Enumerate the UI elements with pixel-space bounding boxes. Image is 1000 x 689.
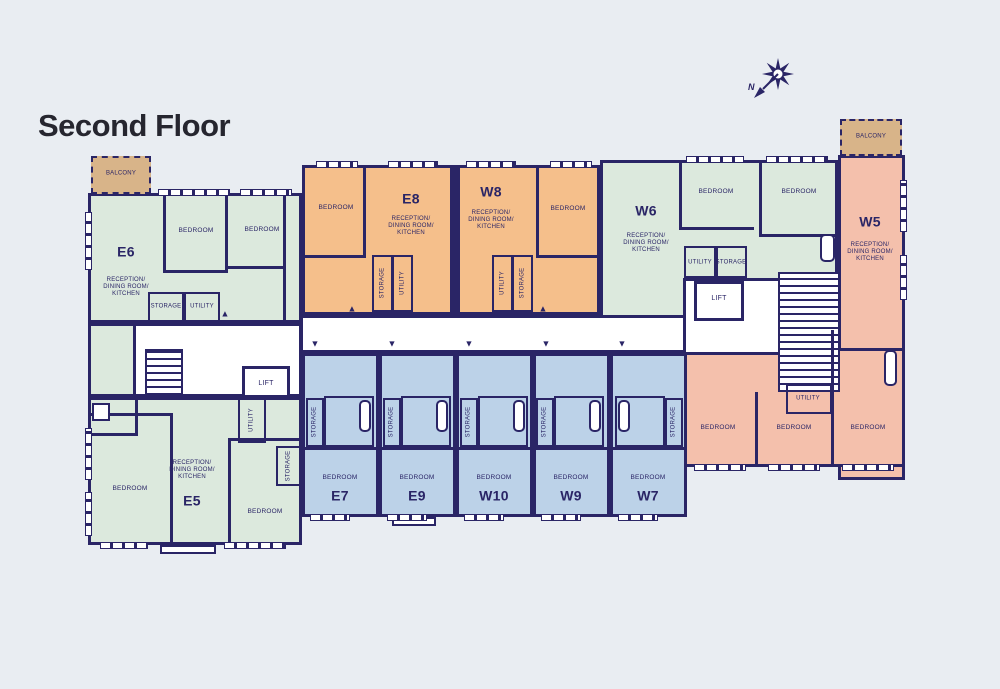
storage-label: STORAGE (151, 303, 182, 310)
wall (454, 353, 458, 517)
wall (679, 227, 754, 230)
utility-label: UTILITY (796, 395, 820, 402)
window (541, 514, 581, 521)
window (240, 189, 292, 196)
utility-label: UTILITY (248, 408, 255, 432)
window (387, 514, 427, 521)
window (100, 542, 148, 549)
wall (382, 447, 453, 450)
window (686, 156, 744, 163)
window (316, 161, 358, 168)
unit-label-w8: W8 (480, 184, 502, 201)
page-title: Second Floor (38, 108, 230, 144)
reception-label: RECEPTION/ DINING ROOM/ KITCHEN (169, 460, 214, 482)
storage-label: STORAGE (465, 407, 472, 438)
left-service-room (88, 323, 136, 397)
compass-rose-icon (746, 48, 810, 112)
bathtub-icon (436, 400, 448, 432)
bedroom-label: BEDROOM (245, 226, 280, 234)
lift-label: LIFT (711, 295, 726, 303)
bedroom-label: BEDROOM (699, 188, 734, 196)
entrance-arrow-icon: ▲ (348, 305, 357, 314)
wall (225, 266, 286, 269)
unit-label-w6: W6 (635, 203, 657, 220)
window (310, 514, 350, 521)
storage-label: STORAGE (519, 268, 526, 299)
bathtub-icon (589, 400, 601, 432)
window (766, 156, 828, 163)
entrance-arrow-icon: ▼ (311, 340, 320, 349)
reception-label: RECEPTION/ DINING ROOM/ KITCHEN (468, 210, 513, 232)
wall (459, 447, 530, 450)
wall (305, 447, 376, 450)
window (85, 492, 92, 536)
window (85, 428, 92, 480)
bathtub-icon (359, 400, 371, 432)
wall (536, 447, 607, 450)
bedroom-label: BEDROOM (777, 424, 812, 432)
bedroom-label: BEDROOM (851, 424, 886, 432)
entrance-arrow-icon: ▼ (618, 340, 627, 349)
window (618, 514, 658, 521)
window (388, 161, 438, 168)
storage-label: STORAGE (311, 407, 318, 438)
entrance-arrow-icon: ▲ (221, 310, 230, 319)
lift-label: LIFT (258, 380, 273, 388)
bedroom-label: BEDROOM (782, 188, 817, 196)
wall (450, 165, 460, 315)
bedroom-label: BEDROOM (323, 474, 358, 482)
window (464, 514, 504, 521)
bedroom-label: BEDROOM (701, 424, 736, 432)
wall (225, 193, 228, 273)
storage-label: STORAGE (285, 451, 292, 482)
shower-icon (92, 403, 110, 421)
wall (88, 433, 138, 436)
wall (135, 397, 138, 436)
window (550, 161, 592, 168)
balcony-label: BALCONY (106, 170, 136, 177)
compass-north-label: N (748, 82, 755, 92)
utility-label: UTILITY (688, 259, 712, 266)
bedroom-label: BEDROOM (551, 205, 586, 213)
storage-label: STORAGE (388, 407, 395, 438)
utility-label: UTILITY (190, 303, 214, 310)
entrance-arrow-icon: ▼ (465, 340, 474, 349)
wall (363, 165, 366, 257)
entrance-step (160, 545, 216, 554)
utility-label: UTILITY (399, 271, 406, 295)
reception-label: RECEPTION/ DINING ROOM/ KITCHEN (623, 233, 668, 255)
wall (228, 438, 231, 545)
entrance-arrow-icon: ▼ (542, 340, 551, 349)
window (158, 189, 230, 196)
window (85, 212, 92, 270)
floor-plan: Second Floor N (0, 0, 1000, 689)
unit-label-e9: E9 (408, 488, 426, 505)
window (768, 464, 820, 471)
wall (302, 255, 366, 258)
wall (755, 392, 758, 467)
wall (531, 353, 535, 517)
window (900, 255, 907, 300)
unit-label-e6: E6 (117, 244, 135, 261)
bedroom-label: BEDROOM (179, 227, 214, 235)
bedroom-label: BEDROOM (400, 474, 435, 482)
storage-label: STORAGE (379, 268, 386, 299)
wall (536, 165, 539, 257)
window (466, 161, 516, 168)
unit-label-w7: W7 (637, 488, 659, 505)
window (842, 464, 894, 471)
wall (759, 160, 762, 237)
reception-label: RECEPTION/ DINING ROOM/ KITCHEN (103, 277, 148, 299)
bathtub-icon (618, 400, 630, 432)
wall (283, 193, 286, 323)
unit-label-e8: E8 (402, 191, 420, 208)
storage-label: STORAGE (716, 259, 747, 266)
window (900, 180, 907, 232)
wall (679, 160, 682, 230)
storage-label: STORAGE (541, 407, 548, 438)
reception-label: RECEPTION/ DINING ROOM/ KITCHEN (847, 242, 892, 264)
storage-label: STORAGE (670, 407, 677, 438)
wall (608, 353, 612, 517)
bathtub-icon (884, 350, 897, 386)
wall (163, 270, 228, 273)
wall (377, 353, 381, 517)
bedroom-label: BEDROOM (248, 508, 283, 516)
unit-label-w5: W5 (859, 214, 881, 231)
bedroom-label: BEDROOM (477, 474, 512, 482)
reception-label: RECEPTION/ DINING ROOM/ KITCHEN (388, 216, 433, 238)
wall (163, 193, 166, 273)
compass-icon: N (746, 48, 810, 112)
bedroom-label: BEDROOM (554, 474, 589, 482)
entrance-arrow-icon: ▼ (388, 340, 397, 349)
wall (613, 447, 684, 450)
bedroom-label: BEDROOM (113, 485, 148, 493)
unit-label-e5: E5 (183, 493, 201, 510)
window (694, 464, 746, 471)
entrance-arrow-icon: ▲ (539, 305, 548, 314)
unit-label-w9: W9 (560, 488, 582, 505)
utility-label: UTILITY (499, 271, 506, 295)
bedroom-label: BEDROOM (631, 474, 666, 482)
window (224, 542, 286, 549)
balcony-label: BALCONY (856, 133, 886, 140)
unit-label-e7: E7 (331, 488, 349, 505)
bedroom-label: BEDROOM (319, 204, 354, 212)
bathtub-icon (513, 400, 525, 432)
unit-label-w10: W10 (479, 488, 509, 505)
left-staircase (145, 349, 183, 395)
wall (536, 255, 600, 258)
main-corridor (300, 315, 687, 353)
bathtub-icon (820, 234, 835, 262)
